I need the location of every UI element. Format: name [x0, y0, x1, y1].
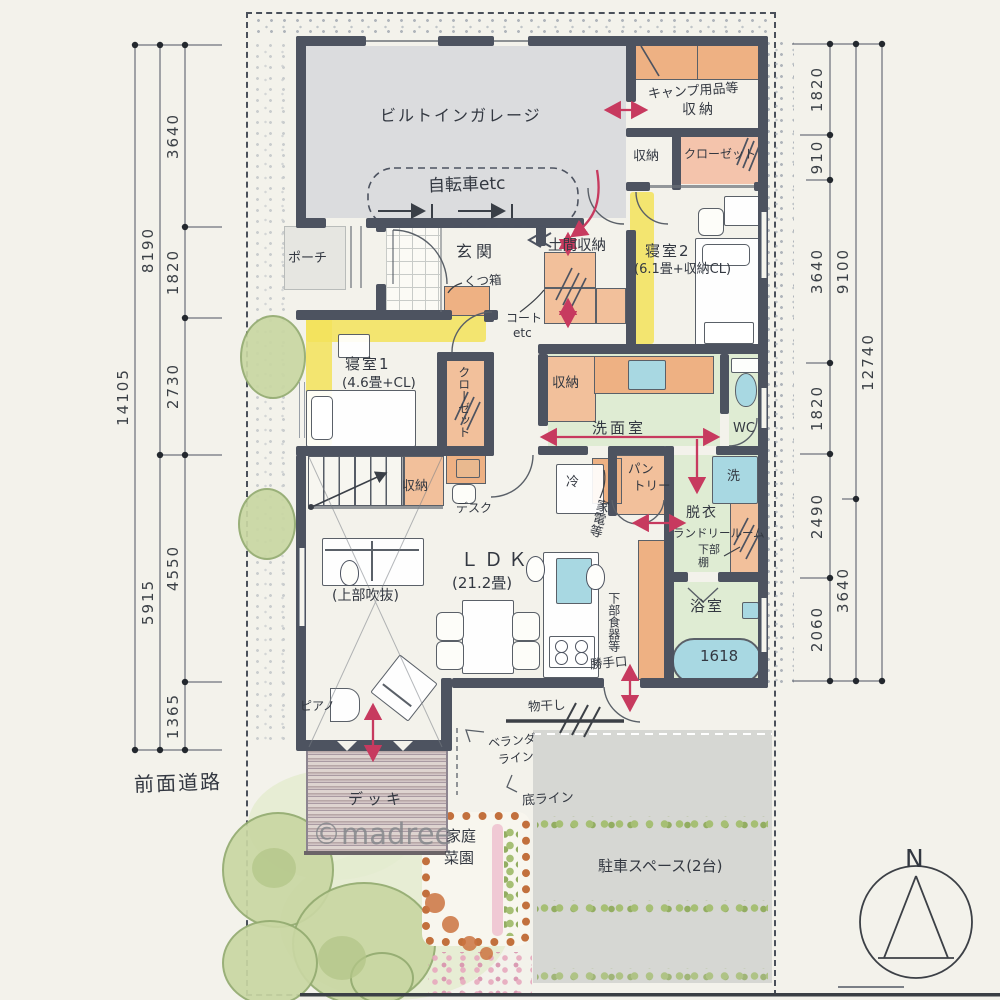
garden-blob [480, 947, 493, 960]
label-bicycle: 自転車etc [428, 175, 506, 197]
stove-burner [575, 652, 588, 665]
dim-left-inner: 1820 [164, 249, 182, 295]
window [299, 382, 305, 438]
doma-cabinet [596, 288, 626, 324]
stair-ldk-line [308, 506, 443, 509]
window [761, 598, 767, 652]
wall [296, 36, 366, 46]
label-lower-shelf: 下部棚 [698, 544, 724, 569]
tree [240, 315, 306, 399]
parking-green-strip [537, 816, 768, 830]
dim-left-inner: 4550 [164, 545, 182, 591]
tree [238, 488, 296, 560]
flower-bed [428, 952, 532, 994]
garden-blob [462, 936, 477, 951]
dim-left-mid: 8190 [139, 227, 157, 273]
tree-shade [318, 936, 366, 980]
kitchen-back-cabinet [638, 540, 666, 680]
dim-left-outer: 14105 [114, 368, 132, 426]
wall [672, 128, 681, 190]
room-label-bedroom1: 寝室1 [345, 356, 391, 373]
room-label-washroom: 洗面室 [592, 420, 646, 437]
wall [484, 352, 494, 456]
wall [452, 678, 604, 688]
parking-green-strip [537, 968, 768, 981]
entry-hall-line [440, 228, 442, 312]
dim-right-inner: 3640 [808, 248, 826, 294]
dining-table [462, 600, 514, 674]
floor-lamp [340, 560, 359, 586]
doma-cabinet [544, 288, 596, 324]
label-washer: 洗 [727, 470, 740, 485]
room-label-closet1: クローゼット [456, 366, 470, 452]
dim-right-outer: 12740 [859, 333, 877, 391]
dim-right-mid: 3640 [834, 567, 852, 613]
wall [626, 128, 768, 137]
compass-icon [860, 866, 972, 978]
dim-left-mid: 5915 [139, 579, 157, 625]
room-label-ldk: ＬＤＫ [460, 550, 532, 572]
bed1-pillow [311, 396, 333, 440]
label-coat-etc: etc [513, 327, 532, 341]
room-label-garage: ビルトインガレージ [380, 107, 542, 125]
room-label-entrance: 玄関 [456, 243, 496, 261]
toilet-bowl [735, 373, 757, 407]
parking-green-strip [537, 900, 768, 914]
room-label-bedroom2-size: (6.1畳+収納CL) [634, 263, 731, 278]
wall [437, 352, 447, 456]
wall [626, 36, 636, 102]
garden-strip-pink [492, 824, 503, 936]
window [761, 212, 767, 278]
label-shoe-box: くつ箱 [464, 273, 502, 289]
wall [608, 446, 617, 516]
dim-right-inner: 910 [808, 140, 826, 175]
deck-edge [304, 851, 446, 855]
pendant-lamp [586, 564, 605, 590]
room-label-doma-storage: 土間収納 [548, 238, 606, 255]
label-desk: デスク [456, 502, 492, 516]
wall [754, 182, 768, 191]
label-coat: コート [506, 312, 542, 326]
doma-cabinet [544, 252, 596, 288]
bed2-foot [704, 322, 754, 344]
wall [438, 36, 494, 46]
dim-left-inner: 1365 [164, 693, 182, 739]
wall [758, 36, 768, 348]
staircase [308, 456, 404, 506]
wall [612, 446, 666, 455]
wall [376, 218, 386, 232]
dining-chair [436, 612, 464, 641]
wall [366, 218, 584, 228]
desk-stationery [456, 459, 480, 478]
label-piano: ピアノ [300, 700, 335, 714]
wall [296, 218, 326, 228]
wall [484, 310, 494, 322]
wall [536, 222, 546, 246]
wall [640, 678, 768, 688]
garden-blob [442, 916, 459, 933]
sofa [322, 538, 424, 586]
garden-strip-green [504, 824, 518, 936]
room-label-bedroom2: 寝室2 [645, 243, 691, 260]
room-label-deck: デッキ [348, 791, 405, 808]
room-label-wc: WC [733, 422, 755, 437]
shower-unit [742, 602, 759, 619]
compass-n-label: N [905, 845, 924, 874]
room-label-pantry-2: トリー [633, 479, 671, 493]
dim-right-inner: 1820 [808, 66, 826, 112]
dim-right-inner: 2490 [808, 493, 826, 539]
vanity-sink [628, 360, 666, 390]
label-drying: 物干し [528, 698, 566, 714]
dim-left-inner: 2730 [164, 363, 182, 409]
room-label-bedroom1-size: (4.6畳+CL) [342, 376, 416, 392]
closet-front-line [650, 185, 756, 188]
dim-right-inner: 2060 [808, 606, 826, 652]
label-parking: 駐車スペース(2台) [598, 858, 722, 875]
room-label-wash-storage: 収納 [552, 376, 579, 392]
dim-right-inner: 1820 [808, 385, 826, 431]
wall [664, 572, 688, 582]
room-label-ldk-size: (21.2畳) [452, 575, 512, 592]
stove [549, 636, 595, 668]
label-tub-size: 1618 [700, 648, 738, 665]
dim-left-inner: 3640 [164, 113, 182, 159]
window [761, 388, 767, 428]
dim-right-mid: 9100 [834, 248, 852, 294]
room-label-bath: 浴室 [690, 598, 724, 615]
wall [296, 740, 446, 751]
gravel-band-top [252, 15, 768, 37]
wall [528, 36, 768, 46]
camp-cabinet [697, 40, 763, 80]
watermark: ©madree [312, 818, 452, 851]
tree-shade [252, 848, 296, 888]
armchair-seat-line [383, 683, 412, 706]
room-label-storage-top: 収納 [633, 150, 659, 165]
wall [626, 182, 650, 191]
wall [538, 344, 768, 354]
wall [296, 310, 452, 320]
room-label-closet-top: クローゼット [684, 148, 756, 162]
stove-burner [555, 652, 568, 665]
wall [437, 352, 494, 361]
camp-cabinet [632, 40, 698, 80]
window [299, 548, 305, 626]
sofa-cushion-line [371, 541, 373, 581]
label-void: (上部吹抜) [332, 588, 399, 604]
room-label-stair-storage: 収納 [402, 480, 428, 495]
wall [538, 354, 548, 426]
garden-blob [425, 893, 445, 913]
bedroom2-chair [698, 208, 724, 236]
porch-step [360, 226, 362, 288]
room-label-camp-storage: 収納 [682, 102, 716, 118]
label-garden-2: 菜園 [444, 850, 474, 867]
dining-chair [436, 641, 464, 670]
tree [222, 920, 318, 1000]
wall [626, 230, 636, 348]
entrance-tiles [386, 222, 440, 314]
room-label-pantry-1: パン [628, 462, 654, 476]
wall [720, 354, 729, 414]
floor-plan-canvas: ビルトインガレージ 自転車etc キャンプ用品等 収納 収納 クローゼット 寝室… [0, 0, 1000, 1000]
dining-chair [512, 641, 540, 670]
wall [441, 678, 452, 751]
label-fridge: 冷 [566, 476, 579, 491]
label-front-road: 前面道路 [134, 770, 223, 796]
wall [296, 36, 306, 228]
toilet-tank [731, 358, 760, 373]
porch-step [350, 226, 352, 288]
room-label-porch: ポーチ [288, 252, 327, 267]
room-label-laundry: ランドリールーム [673, 527, 765, 540]
bedroom2-desk [724, 196, 762, 226]
dining-chair [512, 612, 540, 641]
room-label-undress: 脱衣 [686, 505, 718, 521]
wall [538, 446, 588, 455]
sofa-back-line [325, 549, 419, 551]
